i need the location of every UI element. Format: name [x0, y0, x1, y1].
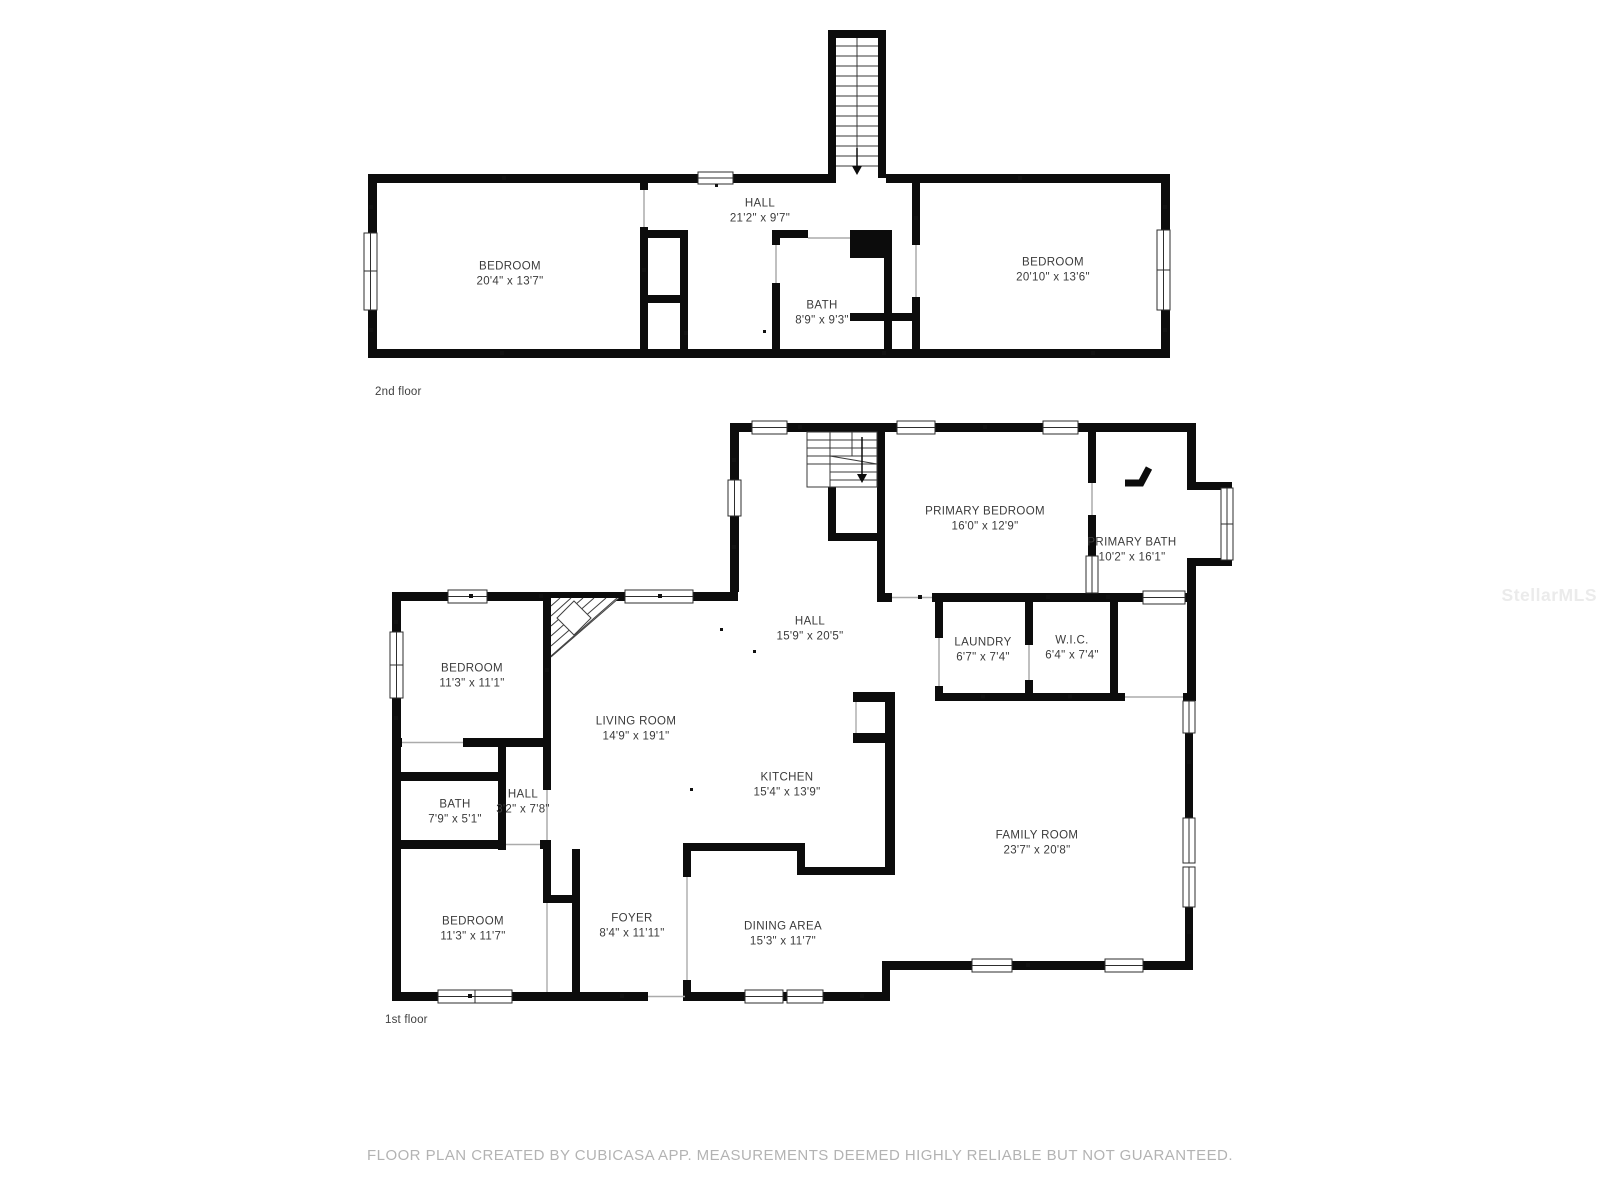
room-label-laundry: LAUNDRY 6'7" x 7'4" [954, 636, 1011, 665]
room-name: HALL [496, 788, 550, 803]
second-floor-plan [364, 30, 1170, 358]
room-dimensions: 14'9" x 19'1" [596, 729, 677, 744]
room-name: BEDROOM [1016, 256, 1090, 271]
room-label-bedroom-lower-left: BEDROOM 11'3" x 11'7" [440, 915, 505, 944]
room-dimensions: 11'3" x 11'7" [440, 929, 505, 944]
room-label-hall-1f: HALL 15'9" x 20'5" [777, 615, 844, 644]
window-icon [1183, 867, 1195, 907]
room-dimensions: 20'10" x 13'6" [1016, 270, 1090, 285]
floor-tag-2nd: 2nd floor [375, 386, 422, 398]
room-dimensions: 16'0" x 12'9" [925, 519, 1045, 534]
room-label-hall-small: HALL 3'2" x 7'8" [496, 788, 550, 817]
room-name: HALL [777, 615, 844, 630]
window-icon [1157, 230, 1170, 310]
room-name: BEDROOM [439, 662, 504, 677]
room-name: BATH [795, 299, 849, 314]
room-dimensions: 3'2" x 7'8" [496, 802, 550, 817]
room-label-bedroom-upper-left: BEDROOM 11'3" x 11'1" [439, 662, 504, 691]
room-label-living-room: LIVING ROOM 14'9" x 19'1" [596, 715, 677, 744]
room-label-bath-2f: BATH 8'9" x 9'3" [795, 299, 849, 328]
room-name: BEDROOM [440, 915, 505, 930]
room-label-wic: W.I.C. 6'4" x 7'4" [1045, 634, 1099, 663]
chimney-block [850, 230, 892, 258]
room-name: FOYER [599, 912, 664, 927]
room-label-family-room: FAMILY ROOM 23'7" x 20'8" [996, 829, 1079, 858]
room-label-bedroom-2f-left: BEDROOM 20'4" x 13'7" [477, 260, 544, 289]
window-icon [1143, 591, 1185, 604]
room-label-bath-1f: BATH 7'9" x 5'1" [428, 798, 482, 827]
room-dimensions: 20'4" x 13'7" [477, 274, 544, 289]
window-icon [698, 172, 733, 184]
room-label-kitchen: KITCHEN 15'4" x 13'9" [754, 771, 821, 800]
room-name: LIVING ROOM [596, 715, 677, 730]
room-name: W.I.C. [1045, 634, 1099, 649]
room-dimensions: 10'2" x 16'1" [1087, 550, 1176, 565]
room-dimensions: 15'3" x 11'7" [744, 934, 822, 949]
first-floor-windows [390, 421, 1233, 1003]
window-icon [897, 421, 935, 434]
window-icon [972, 959, 1012, 972]
floor-plan-drawing [0, 0, 1600, 1200]
window-icon [1043, 421, 1078, 434]
stairs-down-icon [807, 432, 877, 487]
room-name: BATH [428, 798, 482, 813]
room-label-primary-bedroom: PRIMARY BEDROOM 16'0" x 12'9" [925, 505, 1045, 534]
room-dimensions: 6'4" x 7'4" [1045, 648, 1099, 663]
room-name: HALL [730, 197, 790, 212]
stair-treads [836, 38, 878, 166]
room-name: FAMILY ROOM [996, 829, 1079, 844]
window-icon [364, 233, 377, 310]
window-icon [448, 590, 487, 603]
room-dimensions: 21'2" x 9'7" [730, 211, 790, 226]
first-floor-dimension-ticks [394, 425, 1191, 998]
room-name: PRIMARY BEDROOM [925, 505, 1045, 520]
room-label-hall-2f: HALL 21'2" x 9'7" [730, 197, 790, 226]
window-icon [1105, 959, 1143, 972]
room-dimensions: 23'7" x 20'8" [996, 843, 1079, 858]
window-icon [1183, 701, 1195, 733]
room-label-dining-area: DINING AREA 15'3" x 11'7" [744, 920, 822, 949]
window-icon [438, 990, 512, 1003]
under-stair-hatch [551, 598, 619, 657]
room-name: DINING AREA [744, 920, 822, 935]
first-floor-plan [390, 421, 1233, 1003]
stellar-mls-watermark: StellarMLS [1502, 585, 1597, 606]
room-dimensions: 15'9" x 20'5" [777, 629, 844, 644]
window-icon [390, 632, 403, 698]
window-icon [752, 421, 787, 434]
room-label-foyer: FOYER 8'4" x 11'11" [599, 912, 664, 941]
room-dimensions: 15'4" x 13'9" [754, 785, 821, 800]
stairs-up-icon [828, 30, 886, 178]
room-dimensions: 8'4" x 11'11" [599, 926, 664, 941]
caption-text: FLOOR PLAN CREATED BY CUBICASA APP. MEAS… [0, 1147, 1600, 1164]
room-dimensions: 11'3" x 11'1" [439, 676, 504, 691]
room-dimensions: 6'7" x 7'4" [954, 650, 1011, 665]
window-icon [787, 990, 823, 1003]
window-icon [728, 480, 741, 516]
room-label-bedroom-2f-right: BEDROOM 20'10" x 13'6" [1016, 256, 1090, 285]
primary-bath-door-hook-icon [1125, 468, 1149, 483]
stair-direction-arrow [852, 148, 862, 175]
first-floor-walls [392, 423, 1232, 1001]
second-floor-windows [364, 172, 1170, 310]
window-icon [1221, 488, 1233, 560]
room-dimensions: 8'9" x 9'3" [795, 313, 849, 328]
room-name: PRIMARY BATH [1087, 536, 1176, 551]
floor-plan-page: BEDROOM 20'4" x 13'7" HALL 21'2" x 9'7" … [0, 0, 1600, 1200]
window-icon [745, 990, 783, 1003]
window-icon [1183, 818, 1195, 863]
room-name: LAUNDRY [954, 636, 1011, 651]
room-name: KITCHEN [754, 771, 821, 786]
room-name: BEDROOM [477, 260, 544, 275]
room-dimensions: 7'9" x 5'1" [428, 812, 482, 827]
floor-tag-1st: 1st floor [385, 1014, 428, 1026]
room-label-primary-bath: PRIMARY BATH 10'2" x 16'1" [1087, 536, 1176, 565]
